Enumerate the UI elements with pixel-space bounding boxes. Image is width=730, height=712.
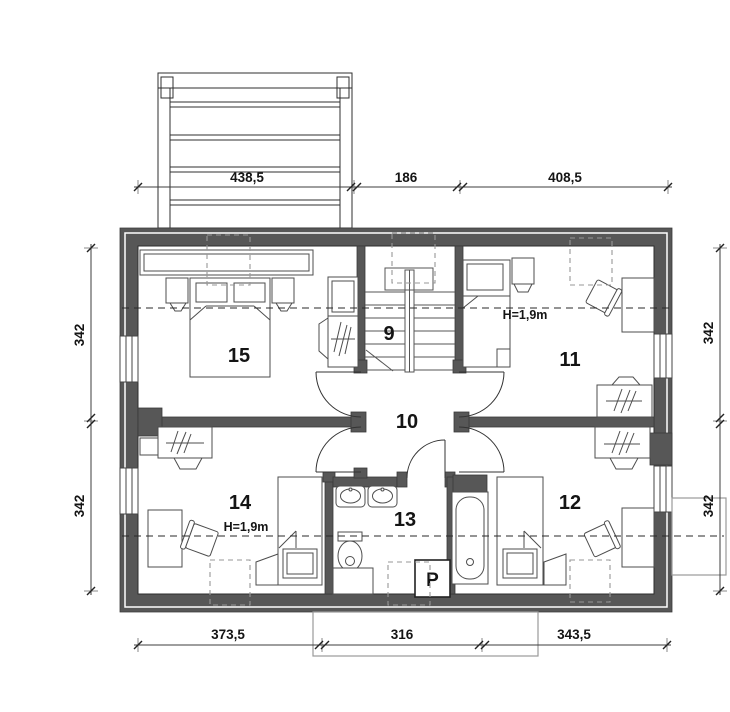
nightstand bbox=[272, 278, 294, 303]
desk bbox=[148, 510, 182, 567]
dim-top-2: 186 bbox=[395, 170, 418, 185]
chair bbox=[583, 520, 621, 559]
dim-top-1: 438,5 bbox=[230, 170, 264, 185]
room-11-furniture bbox=[463, 258, 654, 417]
dimension-top: 438,5 186 408,5 bbox=[134, 170, 672, 194]
dim-bottom-2: 316 bbox=[391, 627, 414, 642]
floor-plan-sheet: P bbox=[0, 0, 730, 712]
dim-left-1: 342 bbox=[72, 324, 87, 347]
dim-bottom-3: 343,5 bbox=[557, 627, 591, 642]
dim-right-1: 342 bbox=[701, 322, 716, 345]
stairwell-wall-right bbox=[455, 246, 463, 372]
wall-rooms-11-12 bbox=[465, 417, 654, 427]
dormer-outline-bottom bbox=[313, 612, 538, 656]
pillow bbox=[234, 283, 265, 302]
wardrobe bbox=[597, 377, 652, 417]
dim-right-2: 342 bbox=[701, 495, 716, 518]
nightstand bbox=[512, 258, 534, 284]
floor-plan-drawing: P bbox=[0, 0, 730, 712]
wardrobe bbox=[158, 427, 212, 469]
dimension-bottom: 373,5 316 343,5 bbox=[134, 627, 671, 652]
room-15-label: 15 bbox=[228, 345, 250, 367]
pillow bbox=[196, 283, 227, 302]
toilet bbox=[338, 532, 362, 571]
dim-top-3: 408,5 bbox=[548, 170, 582, 185]
chair bbox=[180, 520, 219, 559]
door-room-12 bbox=[459, 427, 504, 472]
door-bathroom bbox=[407, 440, 445, 478]
room-9-label: 9 bbox=[383, 323, 394, 345]
room-10-label: 10 bbox=[396, 411, 418, 433]
knee-height-note-room14: H=1,9m bbox=[224, 520, 269, 534]
bedside-shelf bbox=[544, 554, 566, 585]
window-right-lower bbox=[652, 466, 674, 512]
room-11-label: 11 bbox=[559, 349, 580, 371]
washing-machine: P bbox=[415, 560, 450, 597]
staircase bbox=[365, 268, 455, 372]
room-14-label: 14 bbox=[229, 492, 252, 514]
window-left-lower bbox=[118, 468, 140, 514]
bathroom-fixtures: P bbox=[333, 486, 488, 597]
washing-machine-label: P bbox=[426, 570, 439, 591]
stair-break-line bbox=[366, 350, 393, 371]
dimension-right: 342 342 bbox=[701, 244, 727, 595]
window-left-upper bbox=[118, 336, 140, 382]
window-right-upper bbox=[652, 334, 674, 378]
nightstand bbox=[166, 278, 188, 303]
washbasin bbox=[336, 486, 365, 507]
wall-rooms-15-14 bbox=[138, 417, 356, 427]
washbasin bbox=[368, 486, 397, 507]
balcony-railing bbox=[158, 73, 352, 228]
pillow bbox=[467, 264, 503, 290]
dim-bottom-1: 373,5 bbox=[211, 627, 245, 642]
bathroom-cabinet bbox=[333, 568, 373, 594]
dimension-left: 342 342 bbox=[72, 244, 98, 595]
bathtub bbox=[452, 492, 488, 584]
door-room-11 bbox=[459, 372, 504, 417]
room-12-label: 12 bbox=[559, 492, 581, 514]
wardrobe bbox=[595, 427, 650, 469]
room-13-label: 13 bbox=[394, 509, 416, 531]
dim-left-2: 342 bbox=[72, 495, 87, 518]
bedside-shelf bbox=[256, 554, 278, 585]
door-room-14 bbox=[316, 427, 361, 472]
chair bbox=[584, 278, 622, 317]
desk bbox=[622, 278, 654, 332]
knee-height-note-room11: H=1,9m bbox=[503, 308, 548, 322]
door-room-15 bbox=[316, 372, 361, 417]
desk bbox=[622, 508, 654, 567]
